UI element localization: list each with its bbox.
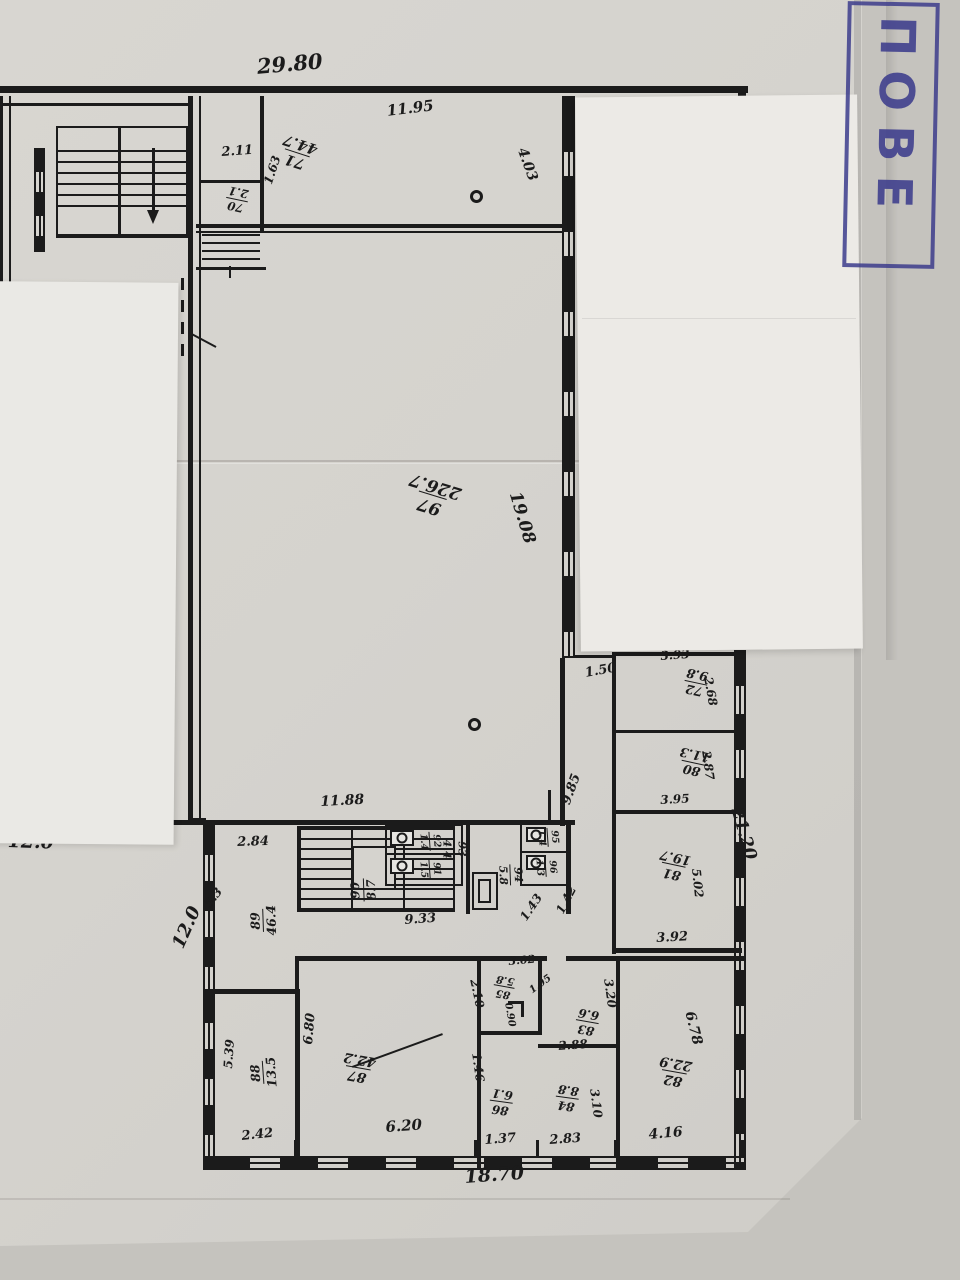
- wall-segment: [203, 989, 300, 994]
- dimension-tick: [614, 1140, 617, 1158]
- dim-3-10: 3.10: [588, 1088, 604, 1119]
- dimension-tick: [229, 266, 231, 278]
- overlay-sheet-top-right: [575, 95, 863, 652]
- wall-segment: [203, 1156, 215, 1170]
- door-leaf: [478, 879, 491, 903]
- wall-segment: [56, 236, 188, 238]
- room-label-85: 855.8: [492, 972, 517, 1000]
- room-label-88: 8813.5: [248, 1056, 279, 1088]
- hidden-line-dash: [181, 278, 184, 290]
- room-label-83: 836.6: [574, 1006, 601, 1038]
- stair-divider: [118, 126, 121, 236]
- sink-symbol: [390, 830, 414, 846]
- dimension-tick: [741, 1140, 744, 1158]
- dim-1-46: 1.46: [470, 1052, 486, 1083]
- stair-treads: [202, 234, 260, 266]
- room-label-89: 8946.4: [248, 905, 278, 936]
- room-label-86: 866.1: [488, 1087, 514, 1118]
- wall-segment: [0, 86, 748, 93]
- dim-bottom-width: 18.70: [464, 1164, 525, 1187]
- dim-11-88: 11.88: [320, 793, 365, 809]
- dim-2-11: 2.11: [221, 144, 254, 159]
- column-symbol: [470, 190, 483, 203]
- wall-segment: [477, 1031, 542, 1035]
- wall-segment: [0, 96, 3, 286]
- dim-2-84: 2.84: [237, 835, 269, 849]
- wall-segment: [196, 224, 564, 228]
- room-label-90: 908.7: [349, 878, 378, 902]
- dimension-tick: [474, 1140, 477, 1158]
- scanned-floor-plan-photo: 29.80 11.95 2.11 1.63 4.03 19.08 11.88 2…: [0, 0, 960, 1280]
- room-label-95: 951.4: [536, 827, 560, 848]
- wall-segment: [538, 961, 542, 1035]
- wall-segment: [0, 103, 190, 106]
- wall-segment: [295, 956, 479, 961]
- room-label-81: 8119.7: [655, 847, 692, 883]
- dim-2-88: 2.88: [558, 1038, 588, 1052]
- wall-segment: [196, 267, 266, 270]
- hidden-line-dash: [181, 322, 184, 334]
- wall-segment: [520, 851, 570, 853]
- column-symbol: [468, 718, 481, 731]
- wall-segment: [548, 790, 551, 824]
- dim-top-width: 29.80: [256, 50, 323, 77]
- wall-segment: [612, 730, 738, 733]
- window-wall: [203, 825, 215, 1168]
- wall-segment: [188, 96, 193, 822]
- hidden-line-dash: [181, 300, 184, 312]
- stair-arrow-icon: [147, 210, 159, 224]
- room-label-87: 8742.2: [340, 1049, 378, 1086]
- room-label-82: 8222.9: [656, 1053, 694, 1090]
- room-label-92: 921.4: [418, 831, 442, 852]
- window-wall: [562, 96, 575, 658]
- window-wall: [34, 148, 45, 252]
- wall-segment: [612, 810, 738, 814]
- stair-arrow-stem: [152, 148, 155, 212]
- hidden-line-dash: [181, 344, 184, 356]
- dim-1-37: 1.37: [484, 1132, 517, 1147]
- room-label-84: 848.8: [554, 1083, 580, 1114]
- window-wall: [734, 650, 746, 1168]
- dim-5-02: 5.02: [690, 868, 705, 898]
- room-label-91: 911.5: [418, 859, 442, 880]
- dim-3-95: 3.95: [660, 792, 690, 806]
- dim-6-20: 6.20: [385, 1117, 423, 1135]
- dim-4-16: 4.16: [648, 1125, 683, 1142]
- room-label-96: 961.3: [534, 857, 558, 878]
- dim-2-42: 2.42: [241, 1127, 274, 1143]
- wall-segment: [260, 96, 264, 232]
- toilet-symbol: [390, 858, 414, 874]
- room-label-80: 8011.3: [675, 745, 711, 780]
- wall-segment: [575, 655, 615, 658]
- dim-5-39: 5.39: [222, 1039, 236, 1069]
- room-label-94: 945.8: [497, 864, 524, 886]
- wall-segment: [612, 652, 616, 954]
- dimension-tick: [536, 1140, 539, 1158]
- room-label-93: 934.4: [442, 838, 468, 859]
- dim-3-02: 3.02: [508, 954, 536, 967]
- dim-2-83: 2.83: [549, 1132, 582, 1147]
- wall-segment: [521, 1001, 524, 1017]
- wall-segment: [199, 96, 201, 822]
- dimension-tick: [294, 1140, 297, 1158]
- wall-segment: [9, 96, 11, 286]
- dim-3-20: 3.20: [602, 978, 618, 1009]
- wall-segment: [566, 956, 745, 961]
- dim-9-33: 9.33: [404, 912, 437, 927]
- stamp-box: ПОВЕ: [842, 1, 940, 269]
- stamp-text: ПОВЕ: [865, 16, 925, 223]
- wall-segment: [612, 948, 742, 953]
- dim-6-80: 6.80: [302, 1012, 318, 1045]
- wall-segment: [196, 231, 564, 233]
- dim-3-92: 3.92: [656, 930, 688, 945]
- stair-treads: [58, 150, 186, 214]
- overlay-sheet-left: [0, 281, 178, 845]
